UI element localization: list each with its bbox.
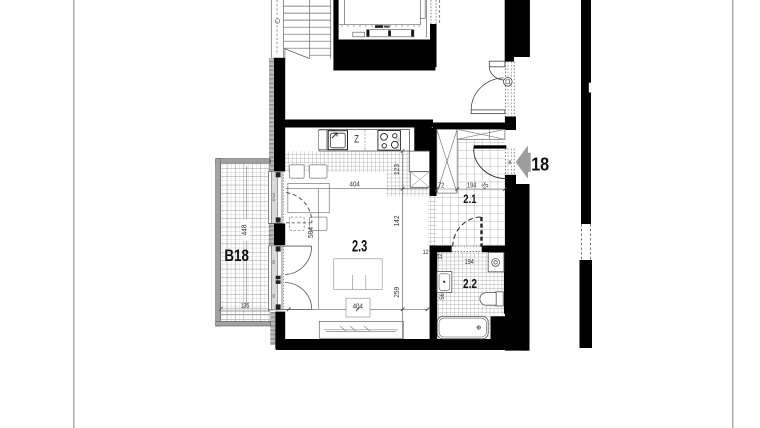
svg-text:12: 12: [437, 253, 444, 259]
svg-text:584: 584: [306, 227, 315, 238]
svg-text:90: 90: [271, 293, 276, 298]
svg-text:404: 404: [350, 180, 360, 189]
svg-text:2.3: 2.3: [352, 238, 367, 256]
svg-text:60: 60: [395, 137, 400, 142]
svg-text:B18: B18: [224, 247, 249, 265]
svg-text:448: 448: [240, 225, 249, 236]
svg-text:12: 12: [423, 249, 429, 256]
svg-text:194: 194: [467, 183, 476, 190]
svg-text:194: 194: [465, 259, 474, 266]
svg-text:136: 136: [241, 301, 250, 310]
svg-text:259: 259: [392, 287, 401, 298]
svg-text:142: 142: [392, 216, 401, 227]
svg-text:123: 123: [392, 164, 401, 175]
svg-text:72: 72: [438, 183, 445, 190]
svg-text:2.1: 2.1: [463, 192, 476, 206]
svg-text:56: 56: [439, 293, 446, 300]
svg-text:87x2: 87x2: [271, 192, 276, 201]
svg-text:18: 18: [531, 154, 549, 175]
svg-text:90: 90: [271, 259, 276, 264]
svg-text:2.2: 2.2: [463, 277, 477, 291]
svg-text:Z: Z: [354, 134, 359, 146]
